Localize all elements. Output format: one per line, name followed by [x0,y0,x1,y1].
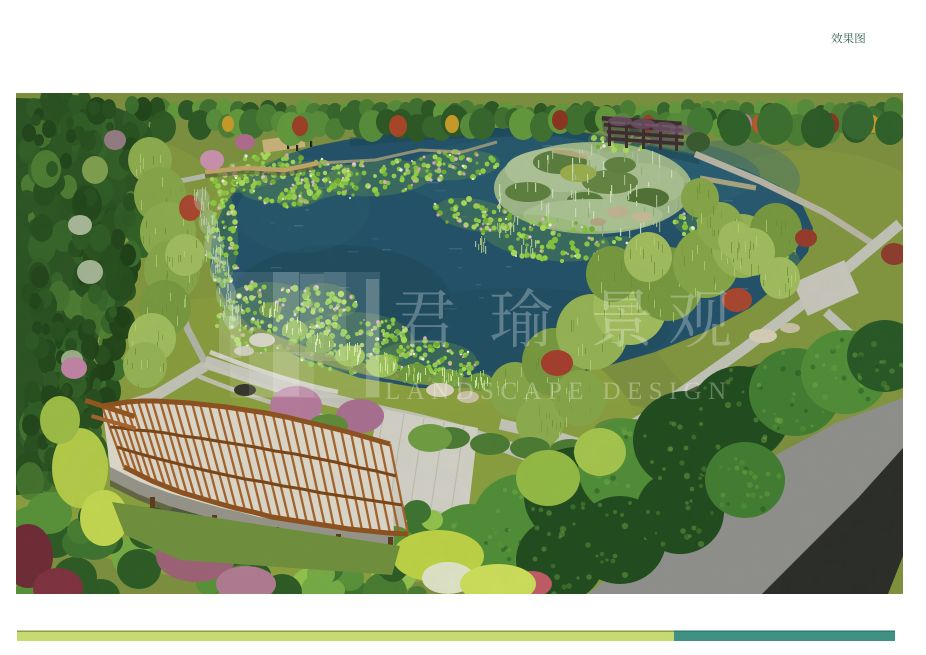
svg-text:LANDSCAPE DESIGN: LANDSCAPE DESIGN [385,378,733,405]
